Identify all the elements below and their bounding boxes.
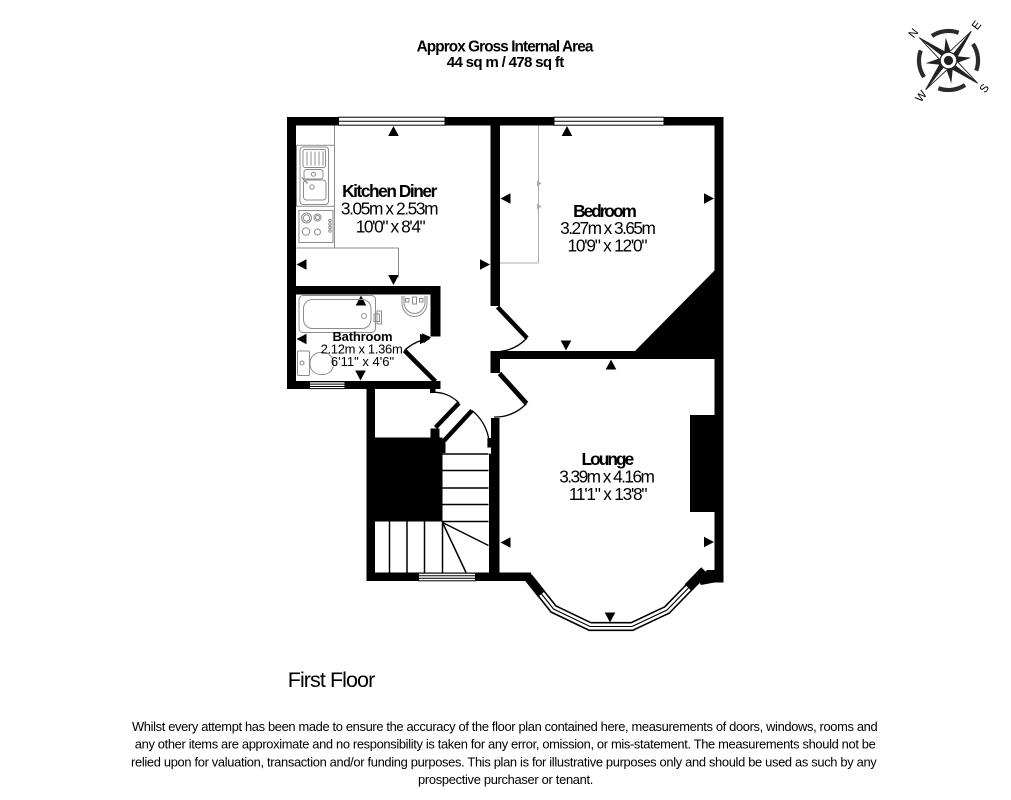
svg-text:E: E	[970, 19, 984, 33]
svg-text:prospective purchaser or tenan: prospective purchaser or tenant.	[418, 772, 593, 787]
svg-text:10'0" x 8'4": 10'0" x 8'4"	[356, 216, 426, 236]
svg-text:any other items are approximat: any other items are approximate and no r…	[135, 737, 876, 752]
svg-text:10'9" x 12'0": 10'9" x 12'0"	[568, 236, 648, 256]
svg-text:11'1" x 13'8": 11'1" x 13'8"	[569, 484, 648, 504]
svg-text:Whilst every attempt has been: Whilst every attempt has been made to en…	[132, 719, 878, 734]
svg-text:W: W	[914, 89, 930, 105]
svg-text:6'11" x 4'6": 6'11" x 4'6"	[331, 354, 395, 369]
svg-text:relied upon for valuation, tra: relied upon for valuation, transaction a…	[131, 754, 877, 769]
svg-text:44 sq m / 478 sq ft: 44 sq m / 478 sq ft	[447, 54, 565, 71]
svg-text:N: N	[907, 27, 922, 41]
svg-text:First Floor: First Floor	[288, 668, 376, 692]
svg-text:S: S	[978, 82, 992, 96]
